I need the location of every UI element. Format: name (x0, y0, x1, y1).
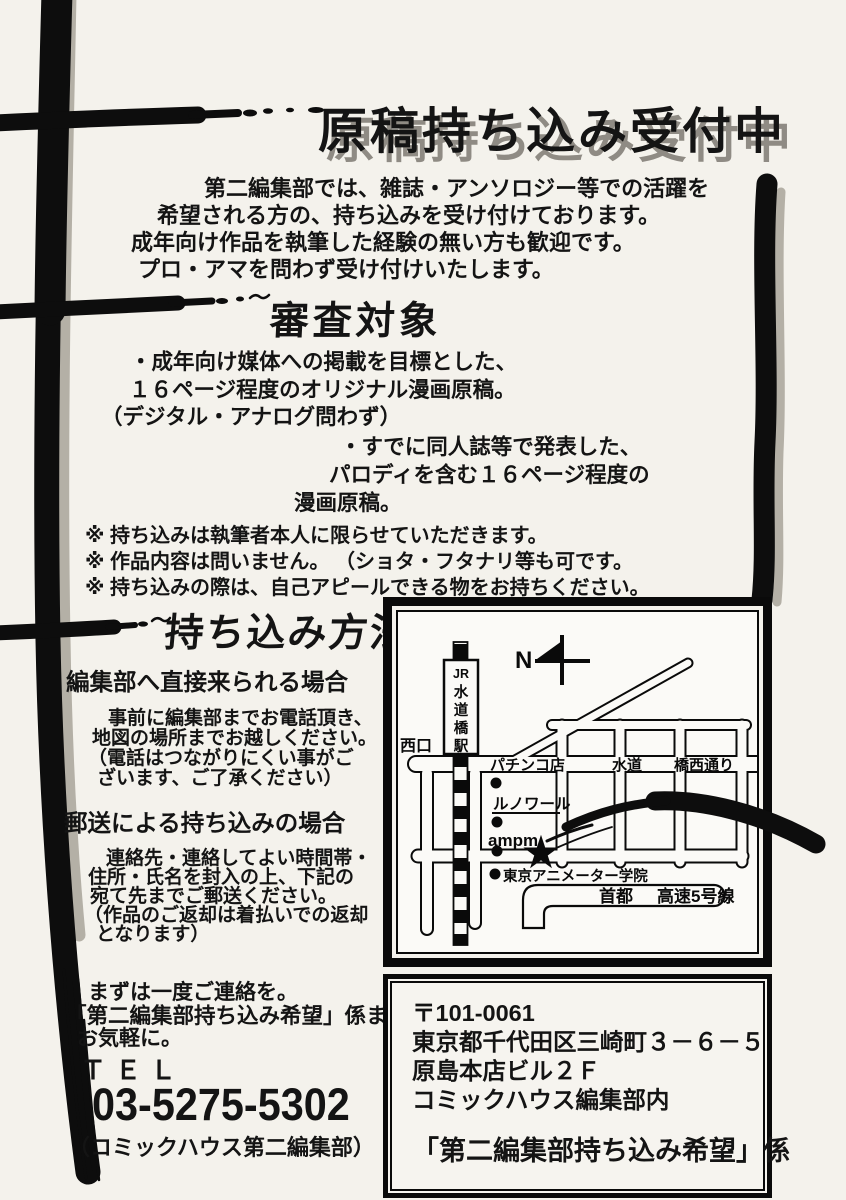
closing-line: お気軽に。 (77, 1022, 182, 1052)
note-line: ※ 作品内容は問いません。 （ショタ・フタナリ等も可です。 (85, 545, 633, 574)
expressway-label-shuto: 首都 (599, 886, 633, 906)
visit-subheading: 編集部へ直接来られる場合 (66, 663, 348, 697)
mailing-address-box: 〒101-0061 東京都千代田区三崎町３－６－５ 原島本店ビル２Ｆ コミックハ… (383, 974, 772, 1198)
station-label-jr: JR (453, 667, 469, 681)
note-line: ※ 持ち込みは執筆者本人に限らせていただきます。 (85, 519, 548, 548)
pachinko-label: パチンコ店 (490, 756, 565, 774)
note-line: ※ 持ち込みの際は、自己アピールできる物をお持ちください。 (85, 571, 650, 600)
page-title: 原稿持ち込み受付中 (318, 92, 786, 163)
destination-star-icon: ★ (520, 826, 561, 878)
street-label-hashinishi: 橋西通り (674, 756, 734, 774)
north-indicator-icon: N (515, 635, 590, 685)
access-map: N (396, 610, 759, 954)
method-heading: 持ち込み方法 (163, 602, 414, 658)
station-label-char: 橋 (454, 719, 469, 737)
tel-number: 03-5275-5302 (92, 1079, 350, 1131)
visit-line: ざいます、ご了承ください） (97, 763, 342, 790)
mail-subheading: 郵送による持ち込みの場合 (64, 804, 345, 838)
renoir-label: ルノワール (493, 796, 571, 813)
review-bullet2-line: ・すでに同人誌等で発表した、 (340, 430, 641, 461)
station-label-char: 水 (454, 683, 469, 701)
review-bullet2-line: 漫画原稿。 (294, 486, 402, 517)
magazine-submission-page: 原稿持ち込み受付中 第二編集部では、雑誌・アンソロジー等での活躍を 希望される方… (0, 0, 846, 1200)
school-dot (490, 869, 501, 880)
ampm-dot (492, 846, 503, 857)
station-label-char: 道 (454, 701, 469, 719)
mailing-address-content: 〒101-0061 東京都千代田区三崎町３－６－５ 原島本店ビル２Ｆ コミックハ… (390, 981, 765, 1191)
renoir-dot (492, 817, 503, 828)
station-label-char: 駅 (453, 738, 469, 755)
west-exit-label: 西口 (400, 737, 432, 755)
station-box: JR 水 道 橋 駅 (444, 660, 478, 755)
review-bullet1-line: （デジタル・アナログ問わず） (101, 400, 401, 431)
intro-line: プロ・アマを問わず受け付けいたします。 (138, 252, 554, 284)
landmark-dots (490, 778, 503, 880)
review-bullet1-line: ・成年向け媒体への掲載を目標とした、 (130, 345, 517, 376)
street-label-suido: 水道 (612, 756, 642, 774)
address-line: 東京都千代田区三崎町３－６－５ (412, 1028, 763, 1057)
postal-code: 〒101-0061 (412, 999, 763, 1028)
mail-line: となります） (96, 919, 209, 946)
tel-note: （コミックハウス第二編集部） (68, 1130, 375, 1162)
access-map-box: N (383, 597, 772, 967)
north-label: N (515, 647, 532, 674)
review-heading: 審査対象 (269, 290, 444, 346)
address-line: コミックハウス編集部内 (412, 1086, 763, 1115)
access-map-drawing: N (398, 612, 757, 952)
address-line: 原島本店ビル２Ｆ (412, 1057, 763, 1086)
expressway-label-kosoku: 高速5号線 (657, 886, 734, 906)
review-bullet2-line: パロディを含む１６ページ程度の (329, 458, 650, 489)
pachinko-dot (491, 778, 502, 789)
recipient-line: 「第二編集部持ち込み希望」係 (412, 1129, 763, 1168)
